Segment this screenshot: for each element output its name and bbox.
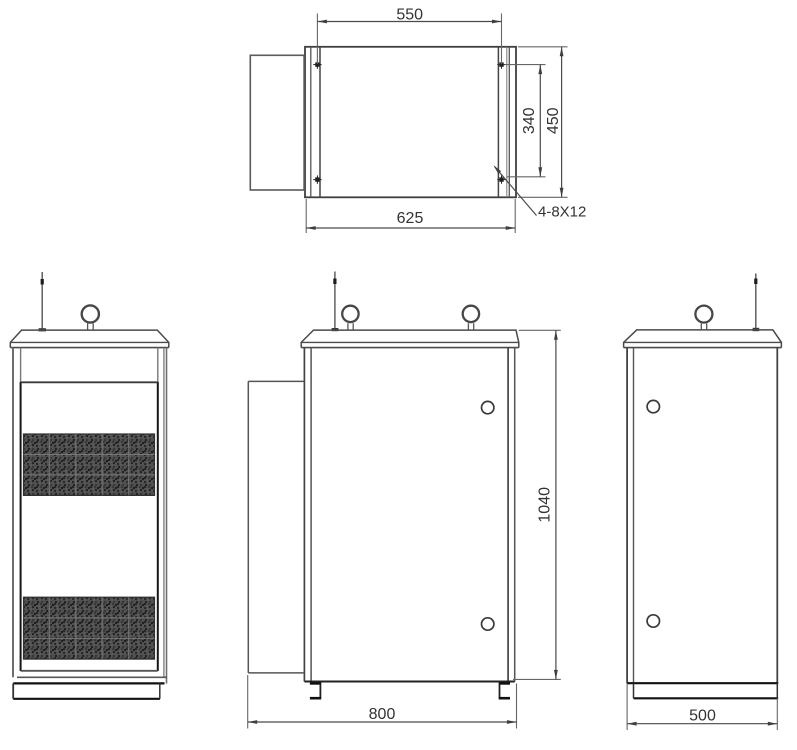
svg-text:625: 625 xyxy=(397,210,424,227)
svg-text:550: 550 xyxy=(396,6,423,23)
svg-text:1040: 1040 xyxy=(537,487,554,523)
svg-text:450: 450 xyxy=(545,107,562,134)
svg-text:340: 340 xyxy=(521,107,538,134)
svg-text:500: 500 xyxy=(689,708,716,725)
svg-text:4-8X12: 4-8X12 xyxy=(538,204,586,221)
svg-text:800: 800 xyxy=(369,706,396,723)
